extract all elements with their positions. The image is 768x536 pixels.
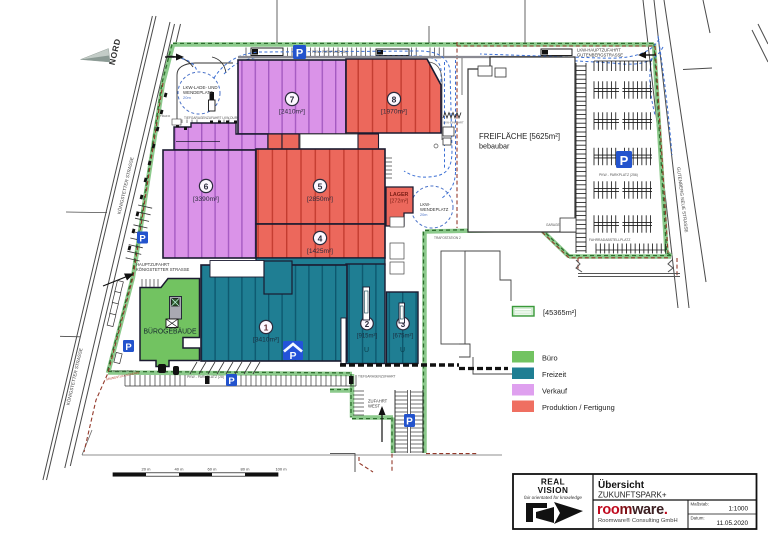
svg-text:GUTENBERGSTRASSE: GUTENBERGSTRASSE xyxy=(577,53,623,58)
svg-text:GARAGE: GARAGE xyxy=(546,223,560,227)
svg-text:1: 1 xyxy=(264,322,269,332)
svg-text:11.05.2020: 11.05.2020 xyxy=(716,520,748,527)
svg-text:P: P xyxy=(296,48,303,60)
svg-text:Übersicht: Übersicht xyxy=(598,478,645,491)
svg-text:LKW-EINFAHRT: LKW-EINFAHRT xyxy=(443,121,464,125)
svg-text:[915m²]: [915m²] xyxy=(357,334,378,340)
svg-text:7: 7 xyxy=(290,94,295,104)
svg-text:[675m²]: [675m²] xyxy=(393,334,414,340)
svg-text:Datum:: Datum: xyxy=(691,516,705,521)
svg-text:Roomware® Consulting GmbH: Roomware® Consulting GmbH xyxy=(598,517,678,524)
svg-text:1:1000: 1:1000 xyxy=(728,506,748,513)
svg-text:bebaubar: bebaubar xyxy=(479,142,510,151)
svg-text:20m: 20m xyxy=(420,213,427,217)
svg-text:WEST: WEST xyxy=(368,404,381,409)
svg-text:Verkauf: Verkauf xyxy=(542,387,568,396)
svg-text:U: U xyxy=(400,347,405,354)
svg-text:VISION: VISION xyxy=(538,486,569,495)
svg-text:ZUKUNFTSPARK+: ZUKUNFTSPARK+ xyxy=(598,491,667,500)
svg-text:[1970m²]: [1970m²] xyxy=(381,109,407,116)
svg-text:P: P xyxy=(289,350,296,362)
svg-text:20m: 20m xyxy=(183,95,191,100)
svg-text:TIEFGARAGENZUFAHRT: TIEFGARAGENZUFAHRT xyxy=(358,375,396,379)
svg-text:100 m: 100 m xyxy=(275,467,287,472)
svg-text:U: U xyxy=(364,347,369,354)
svg-text:FREIFLÄCHE [5625m²]: FREIFLÄCHE [5625m²] xyxy=(479,131,560,141)
svg-text:TRAFO: TRAFO xyxy=(160,114,171,118)
svg-text:TRAFOSTATION 2: TRAFOSTATION 2 xyxy=(434,236,461,240)
svg-text:PKW - PARKPLATZ (36): PKW - PARKPLATZ (36) xyxy=(312,50,347,54)
svg-text:Maßstab:: Maßstab: xyxy=(691,502,709,507)
svg-text:BÜROGEBÄUDE: BÜROGEBÄUDE xyxy=(144,327,197,336)
svg-text:KÖNIGSTETTER STRASSE: KÖNIGSTETTER STRASSE xyxy=(136,267,189,272)
svg-text:Büro: Büro xyxy=(542,354,558,363)
svg-text:80 m: 80 m xyxy=(241,467,251,472)
svg-text:WENDEPLATZ: WENDEPLATZ xyxy=(420,207,449,212)
svg-text:20 m: 20 m xyxy=(142,467,152,472)
svg-text:Freizeit: Freizeit xyxy=(542,370,566,379)
svg-text:P: P xyxy=(406,417,413,428)
svg-text:5: 5 xyxy=(318,181,323,191)
svg-text:fair orientated for knowledge: fair orientated for knowledge xyxy=(524,495,582,500)
svg-text:Produktion / Fertigung: Produktion / Fertigung xyxy=(542,403,615,412)
svg-text:P: P xyxy=(139,234,146,245)
svg-text:40 m: 40 m xyxy=(175,467,185,472)
svg-text:2: 2 xyxy=(365,320,370,329)
svg-text:4: 4 xyxy=(318,233,323,243)
svg-text:6: 6 xyxy=(204,181,209,191)
svg-text:LAGER: LAGER xyxy=(390,192,409,198)
svg-text:[3390m²]: [3390m²] xyxy=(193,196,219,203)
svg-text:60 m: 60 m xyxy=(208,467,218,472)
svg-text:[1425m²]: [1425m²] xyxy=(307,248,333,255)
svg-text:[45365m²]: [45365m²] xyxy=(543,308,576,317)
svg-text:[2850m²]: [2850m²] xyxy=(307,196,333,203)
svg-text:[272m²]: [272m²] xyxy=(390,199,409,205)
svg-text:P: P xyxy=(125,342,132,353)
svg-text:[3410m²]: [3410m²] xyxy=(253,337,279,344)
svg-text:FAHRRADABSTELLPLATZ: FAHRRADABSTELLPLATZ xyxy=(589,238,630,242)
svg-text:PKW - PARKPLATZ (256): PKW - PARKPLATZ (256) xyxy=(599,173,638,177)
svg-text:roomware.: roomware. xyxy=(597,502,668,518)
svg-text:P: P xyxy=(228,376,235,387)
svg-text:P: P xyxy=(620,153,629,168)
svg-text:8: 8 xyxy=(392,94,397,104)
svg-text:[2410m²]: [2410m²] xyxy=(279,109,305,116)
